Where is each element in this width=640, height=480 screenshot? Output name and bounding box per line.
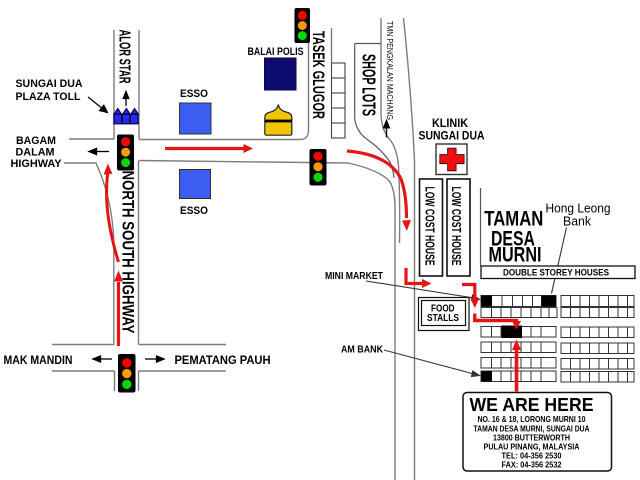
svg-text:MINI MARKET: MINI MARKET: [325, 270, 383, 282]
svg-text:LOW COST HOUSE: LOW COST HOUSE: [449, 187, 464, 266]
svg-text:PEMATANG PAUH: PEMATANG PAUH: [175, 355, 271, 367]
svg-text:PULAU PINANG, MALAYSIA: PULAU PINANG, MALAYSIA: [484, 443, 580, 452]
svg-text:AM BANK: AM BANK: [341, 344, 383, 356]
svg-text:TMN PENGKALAN MACHANG: TMN PENGKALAN MACHANG: [385, 21, 395, 120]
svg-text:NO. 16 & 18, LORONG MURNI 10: NO. 16 & 18, LORONG MURNI 10: [478, 415, 586, 424]
svg-text:ESSO: ESSO: [180, 205, 208, 217]
svg-text:BALAI POLIS: BALAI POLIS: [248, 46, 304, 58]
svg-text:MURNI: MURNI: [489, 244, 542, 267]
svg-text:STALLS: STALLS: [427, 313, 459, 324]
svg-text:HIGHWAY: HIGHWAY: [11, 158, 63, 170]
svg-text:LOW COST HOUSE: LOW COST HOUSE: [422, 187, 437, 266]
svg-text:NORTH SOUTH HIGHWAY: NORTH SOUTH HIGHWAY: [118, 171, 137, 335]
svg-text:Hong Leong: Hong Leong: [546, 202, 611, 216]
svg-text:TAMAN DESA MURNI, SUNGAI DUA: TAMAN DESA MURNI, SUNGAI DUA: [474, 424, 590, 433]
svg-text:ALOR STAR: ALOR STAR: [116, 30, 133, 84]
svg-text:DALAM: DALAM: [16, 147, 55, 159]
svg-text:ESSO: ESSO: [180, 88, 208, 100]
svg-text:TASEK GLUGOR: TASEK GLUGOR: [309, 31, 328, 119]
svg-text:BAGAM: BAGAM: [16, 135, 56, 147]
svg-text:FAX: 04-356 2532: FAX: 04-356 2532: [502, 460, 562, 469]
svg-text:SHOP LOTS: SHOP LOTS: [359, 54, 379, 116]
svg-text:TEL: 04-356 2530: TEL: 04-356 2530: [502, 451, 562, 460]
svg-text:13800 BUTTERWORTH: 13800 BUTTERWORTH: [493, 434, 570, 443]
svg-text:PLAZA TOLL: PLAZA TOLL: [16, 91, 81, 103]
svg-text:KLINIK: KLINIK: [432, 118, 469, 130]
svg-text:DOUBLE STOREY HOUSES: DOUBLE STOREY HOUSES: [503, 268, 609, 279]
svg-text:Bank: Bank: [563, 215, 592, 229]
svg-text:MAK MANDIN: MAK MANDIN: [4, 355, 73, 367]
svg-text:SUNGAI DUA: SUNGAI DUA: [419, 131, 485, 143]
svg-text:SUNGAI DUA: SUNGAI DUA: [16, 78, 83, 90]
svg-text:WE ARE HERE: WE ARE HERE: [470, 394, 594, 415]
